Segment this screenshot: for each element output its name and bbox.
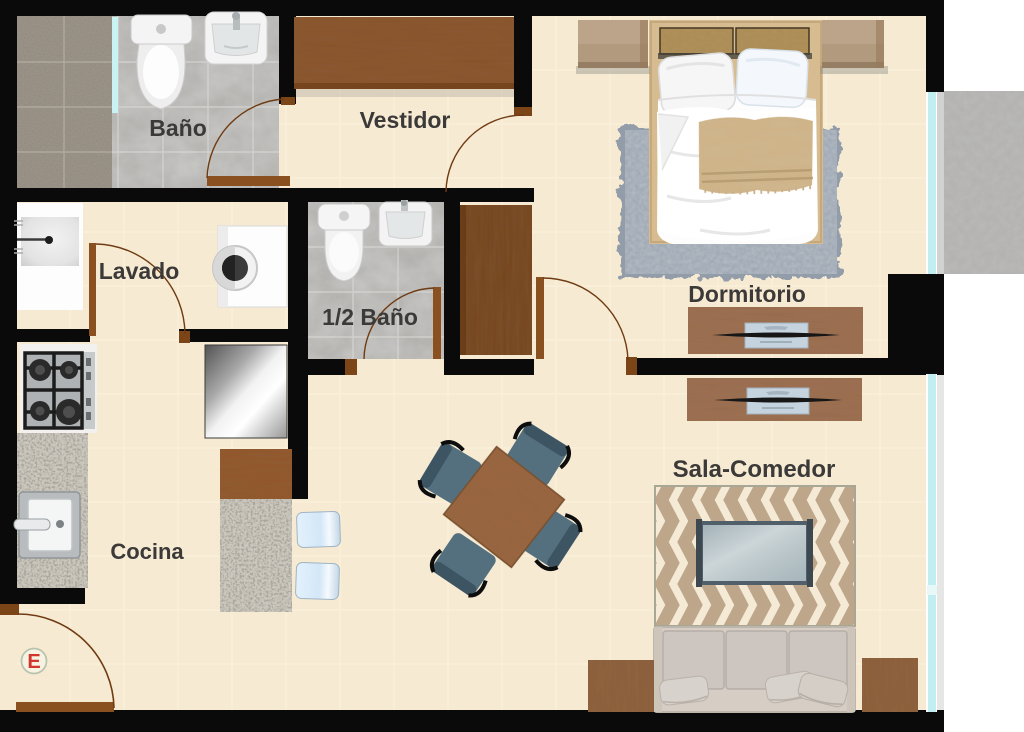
svg-text:Baño: Baño bbox=[149, 115, 207, 141]
svg-text:E: E bbox=[27, 651, 40, 673]
svg-text:Vestidor: Vestidor bbox=[360, 107, 451, 133]
svg-text:Sala-Comedor: Sala-Comedor bbox=[673, 456, 836, 483]
svg-text:1/2 Baño: 1/2 Baño bbox=[322, 304, 418, 330]
svg-text:Lavado: Lavado bbox=[99, 258, 180, 284]
svg-text:Dormitorio: Dormitorio bbox=[688, 281, 806, 307]
svg-text:Cocina: Cocina bbox=[110, 539, 184, 564]
